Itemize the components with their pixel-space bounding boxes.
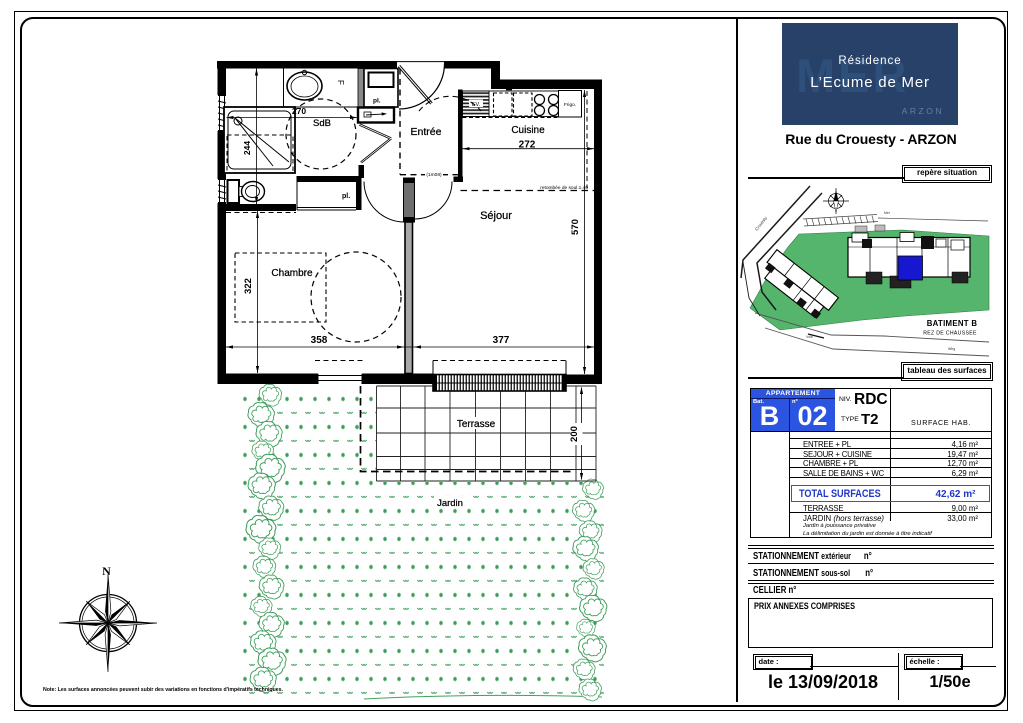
svg-text:Frigo.: Frigo. [564, 102, 576, 108]
svg-text:pl.: pl. [373, 98, 381, 105]
svg-text:358: 358 [311, 335, 328, 346]
svg-text:Chambre: Chambre [271, 268, 313, 279]
svg-text:570: 570 [570, 219, 581, 235]
svg-text:Voie: Voie [806, 335, 813, 339]
svg-text:Jardin: Jardin [437, 498, 463, 509]
svg-text:REZ DE CHAUSSEE: REZ DE CHAUSSEE [923, 331, 977, 337]
svg-text:Cuisine: Cuisine [511, 125, 545, 136]
svg-text:322: 322 [243, 278, 254, 294]
svg-text:SdB: SdB [313, 118, 331, 129]
svg-text:F: F [336, 80, 345, 85]
svg-text:Note: Les surfaces annoncées p: Note: Les surfaces annoncées peuvent sub… [43, 687, 283, 693]
svg-text:377: 377 [493, 335, 510, 346]
svg-text:244: 244 [242, 141, 252, 155]
svg-text:Whg: Whg [948, 347, 955, 351]
svg-text:pl.: pl. [342, 193, 350, 200]
svg-text:Mer: Mer [884, 211, 891, 215]
svg-text:retombée de soul.1.40: retombée de soul.1.40 [540, 185, 588, 191]
svg-text:Entrée: Entrée [411, 126, 442, 138]
svg-text:EV.: EV. [472, 102, 481, 108]
svg-text:(1m08): (1m08) [426, 172, 442, 178]
svg-text:Crouesty: Crouesty [754, 215, 769, 232]
svg-text:BATIMENT B: BATIMENT B [927, 319, 978, 328]
svg-text:Terrasse: Terrasse [457, 419, 496, 430]
svg-text:Séjour: Séjour [480, 210, 512, 222]
svg-text:N: N [102, 564, 111, 578]
svg-text:200: 200 [569, 426, 580, 442]
